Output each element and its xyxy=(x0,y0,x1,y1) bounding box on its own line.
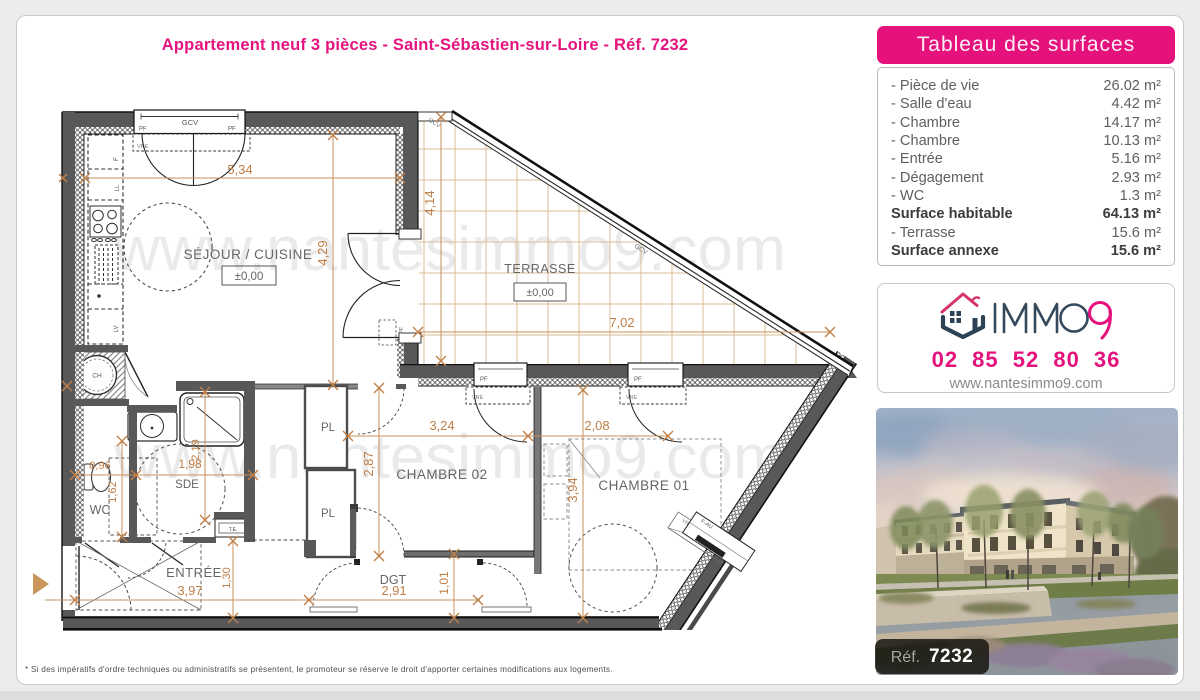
svg-text:PF: PF xyxy=(399,326,405,334)
svg-text:VRE: VRE xyxy=(472,395,484,401)
svg-text:1,01: 1,01 xyxy=(437,571,451,595)
svg-text:PF: PF xyxy=(480,377,488,383)
svg-text:4,14: 4,14 xyxy=(422,190,437,215)
svg-text:LL: LL xyxy=(115,184,121,191)
svg-text:5,34: 5,34 xyxy=(227,162,252,177)
svg-text:2,87: 2,87 xyxy=(361,451,376,476)
svg-text:ENTRÉE: ENTRÉE xyxy=(166,565,222,580)
svg-text:SÉJOUR / CUISINE: SÉJOUR / CUISINE xyxy=(184,247,313,262)
svg-text:CHAMBRE 01: CHAMBRE 01 xyxy=(598,478,689,493)
svg-text:3,24: 3,24 xyxy=(429,418,454,433)
svg-text:CH: CH xyxy=(92,373,102,380)
svg-text:3,97: 3,97 xyxy=(177,583,202,598)
svg-text:PF: PF xyxy=(634,377,642,383)
svg-text:DGT: DGT xyxy=(380,573,407,587)
svg-text:PF: PF xyxy=(139,127,147,133)
svg-text:2,19: 2,19 xyxy=(190,439,202,460)
svg-text:PL: PL xyxy=(321,508,336,520)
svg-text:3,94: 3,94 xyxy=(565,477,580,502)
svg-text:SDE: SDE xyxy=(175,479,199,491)
svg-text:0,96: 0,96 xyxy=(89,460,110,472)
svg-text:2,08: 2,08 xyxy=(584,418,609,433)
svg-text:1,30: 1,30 xyxy=(221,567,233,588)
svg-text:T.E.: T.E. xyxy=(229,527,238,533)
svg-text:1,62: 1,62 xyxy=(107,481,119,502)
svg-text:F: F xyxy=(113,157,120,161)
svg-text:±0,00: ±0,00 xyxy=(235,271,264,283)
svg-text:WC: WC xyxy=(90,503,111,517)
svg-text:GCV: GCV xyxy=(182,118,198,127)
svg-text:4,29: 4,29 xyxy=(315,240,330,265)
svg-text:LV: LV xyxy=(114,326,120,333)
svg-text:PL: PL xyxy=(321,422,336,434)
svg-text:PF: PF xyxy=(228,127,236,133)
svg-text:±0,00: ±0,00 xyxy=(526,287,553,299)
svg-text:7,02: 7,02 xyxy=(609,315,634,330)
svg-text:TERRASSE: TERRASSE xyxy=(504,262,575,276)
svg-text:VRE: VRE xyxy=(626,395,638,401)
svg-text:CHAMBRE 02: CHAMBRE 02 xyxy=(396,467,487,482)
